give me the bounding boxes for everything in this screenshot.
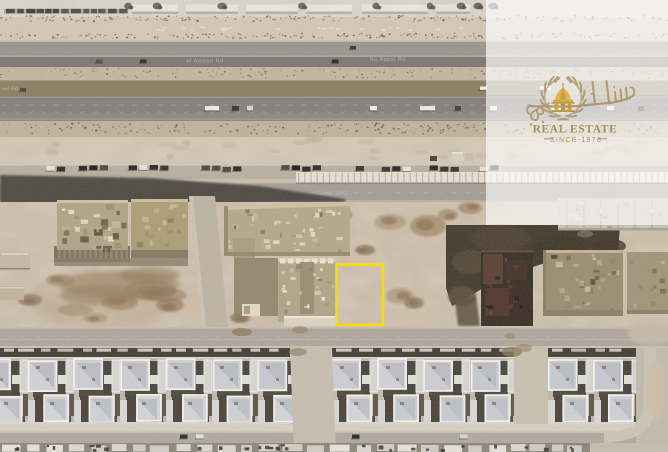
svg-text:REAL ESTATE: REAL ESTATE [533, 124, 618, 136]
svg-text:SINCE-1978: SINCE-1978 [550, 137, 602, 144]
